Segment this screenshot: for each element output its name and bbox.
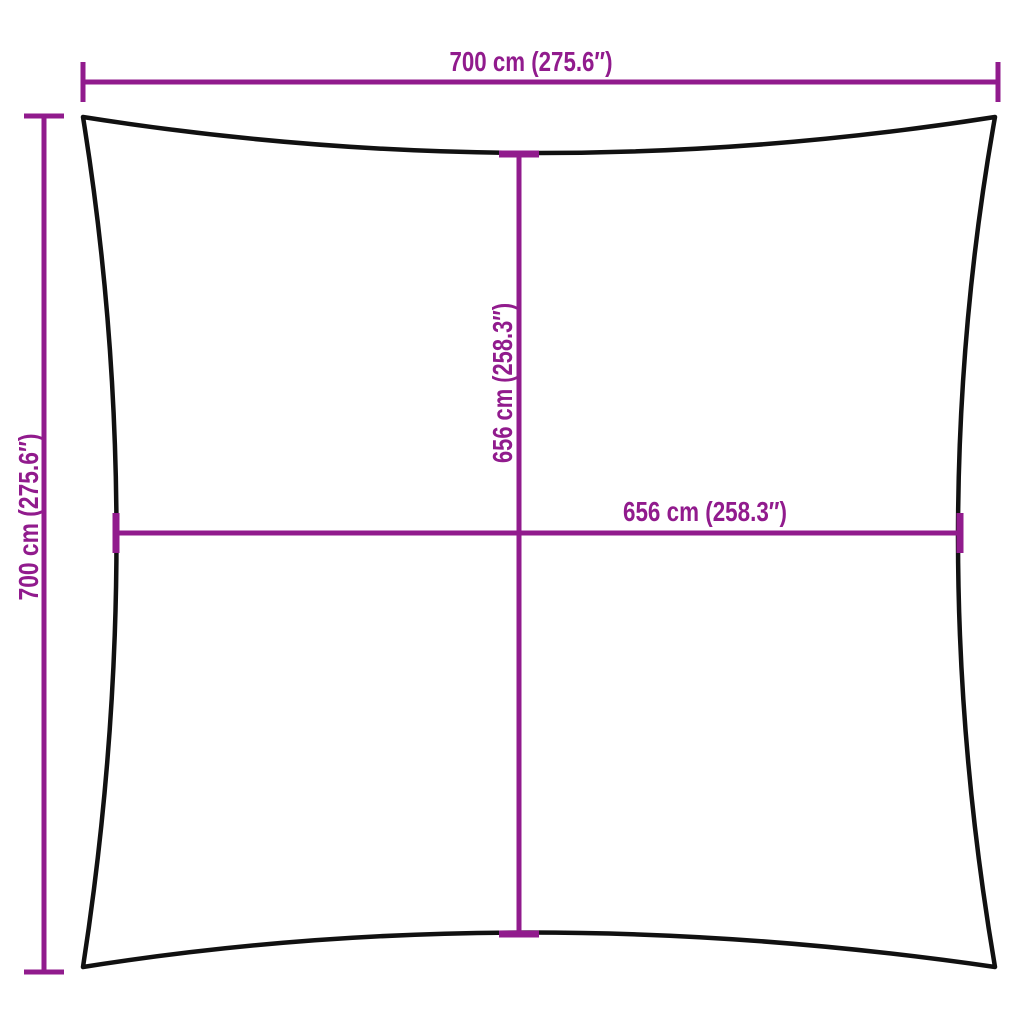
left-height-label: 700 cm (275.6″) xyxy=(13,434,44,601)
top-width-dimension: 700 cm (275.6″) xyxy=(83,46,998,102)
inner-width-dimension: 656 cm (258.3″) xyxy=(116,496,960,553)
diagram-canvas: 700 cm (275.6″) 700 cm (275.6″) 656 cm (… xyxy=(0,0,1024,1024)
inner-height-dimension: 656 cm (258.3″) xyxy=(487,154,539,934)
shade-sail-outline xyxy=(83,117,995,967)
inner-width-label: 656 cm (258.3″) xyxy=(623,496,787,527)
dimension-diagram: 700 cm (275.6″) 700 cm (275.6″) 656 cm (… xyxy=(0,0,1024,1024)
top-width-label: 700 cm (275.6″) xyxy=(450,46,613,77)
left-height-dimension: 700 cm (275.6″) xyxy=(13,116,64,972)
inner-height-label: 656 cm (258.3″) xyxy=(487,303,518,463)
